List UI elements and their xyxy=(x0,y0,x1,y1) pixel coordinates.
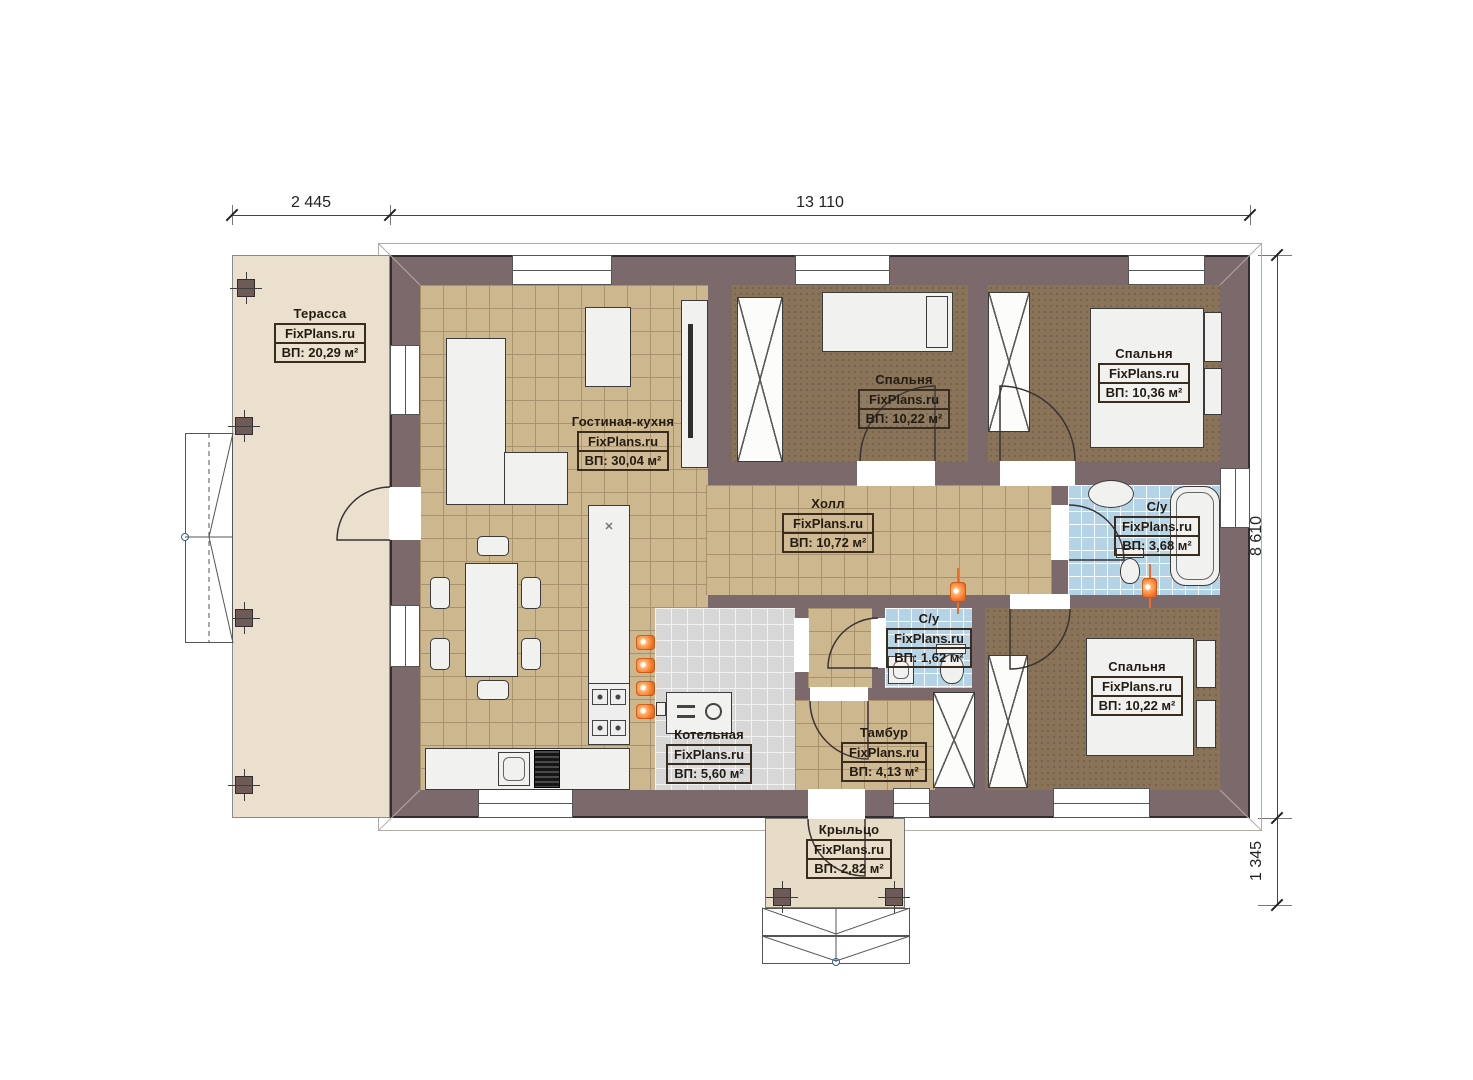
room-name: Спальня xyxy=(875,372,933,387)
window-bedroom-bottom xyxy=(1053,788,1150,818)
nightstand xyxy=(1204,312,1222,362)
chair xyxy=(521,638,541,670)
room-area: ВП: 1,62 м² xyxy=(888,647,970,666)
door-opening-boiler xyxy=(794,618,809,672)
dishwasher xyxy=(534,750,560,788)
dim-terrace-width: 2 445 xyxy=(271,194,351,212)
room-name: Холл xyxy=(811,496,844,511)
chair xyxy=(430,638,450,670)
chair xyxy=(477,680,509,700)
burner-icon xyxy=(610,720,626,736)
sofa xyxy=(446,338,506,505)
boiler-burner-icon xyxy=(705,703,722,720)
room-area: ВП: 20,29 м² xyxy=(276,342,365,361)
sofa-chaise xyxy=(504,452,568,505)
pillow xyxy=(926,296,948,348)
window-bathroom-right xyxy=(1220,468,1250,528)
stairs-start-dot xyxy=(181,533,189,541)
dim-line-top xyxy=(232,215,1250,216)
wardrobe xyxy=(737,297,783,462)
door-opening-bathroom xyxy=(1051,505,1069,560)
burner-icon xyxy=(592,689,608,705)
watermark: FixPlans.ru xyxy=(668,746,750,763)
room-name: Спальня xyxy=(1115,346,1173,361)
room-area: ВП: 2,82 м² xyxy=(808,858,890,877)
porch-column xyxy=(766,881,798,913)
window-kitchen-bottom xyxy=(478,788,573,818)
room-area: ВП: 5,60 м² xyxy=(668,763,750,782)
dim-house-width: 13 110 xyxy=(770,194,870,212)
room-name: Гостиная-кухня xyxy=(572,414,674,429)
room-name: С/у xyxy=(1147,499,1168,514)
burner-icon xyxy=(610,689,626,705)
watermark: FixPlans.ru xyxy=(1100,365,1189,382)
room-label-vestibule: Тамбур FixPlans.ru ВП: 4,13 м² xyxy=(826,725,942,782)
room-name: Терасса xyxy=(294,306,347,321)
watermark: FixPlans.ru xyxy=(860,391,949,408)
dim-line-right xyxy=(1277,255,1278,905)
kitchen-sink-mark: ✕ xyxy=(588,505,630,547)
room-label-bedroom-top: Спальня FixPlans.ru ВП: 10,22 м² xyxy=(846,372,962,429)
room-area: ВП: 10,22 м² xyxy=(860,408,949,427)
heating-icon xyxy=(950,582,966,602)
room-label-bedroom-right: Спальня FixPlans.ru ВП: 10,36 м² xyxy=(1086,346,1202,403)
column-icon xyxy=(773,888,791,906)
door-opening-entrance xyxy=(808,789,865,819)
nightstand xyxy=(1196,700,1216,748)
burner-icon xyxy=(592,720,608,736)
room-area: ВП: 10,72 м² xyxy=(784,532,873,551)
tv-stand xyxy=(681,300,708,468)
coffee-table xyxy=(585,307,631,387)
column-icon xyxy=(235,609,253,627)
nightstand xyxy=(1204,368,1222,415)
terrace-column xyxy=(228,769,260,801)
watermark: FixPlans.ru xyxy=(808,841,890,858)
column-icon xyxy=(885,888,903,906)
chair xyxy=(477,536,509,556)
toilet-bowl xyxy=(1120,558,1140,584)
column-icon xyxy=(237,279,255,297)
room-label-bedroom-bottom: Спальня FixPlans.ru ВП: 10,22 м² xyxy=(1079,659,1195,716)
window-living-top xyxy=(512,255,612,285)
window-bedroom-top xyxy=(795,255,890,285)
door-opening-terrace xyxy=(389,487,421,540)
wardrobe xyxy=(988,292,1030,432)
stove xyxy=(588,683,630,745)
wardrobe xyxy=(988,655,1028,788)
heating-icon xyxy=(636,635,655,650)
window-living-left-1 xyxy=(390,345,420,415)
boiler-line xyxy=(677,705,695,708)
heating-icon xyxy=(636,681,655,696)
chair xyxy=(521,577,541,609)
watermark: FixPlans.ru xyxy=(1116,518,1198,535)
window-living-left-2 xyxy=(390,605,420,667)
room-area: ВП: 10,36 м² xyxy=(1100,382,1189,401)
door-opening-bedroom-bottom xyxy=(1010,594,1070,609)
tv-icon xyxy=(688,324,693,438)
watermark: FixPlans.ru xyxy=(1093,678,1182,695)
kitchen-sink xyxy=(498,752,530,786)
room-label-wc: С/у FixPlans.ru ВП: 1,62 м² xyxy=(871,611,987,668)
room-area: ВП: 10,22 м² xyxy=(1093,695,1182,714)
door-opening-bedroom-right xyxy=(1000,461,1075,486)
room-label-bathroom: С/у FixPlans.ru ВП: 3,68 м² xyxy=(1099,499,1215,556)
room-name: Спальня xyxy=(1108,659,1166,674)
room-label-boiler: Котельная FixPlans.ru ВП: 5,60 м² xyxy=(651,727,767,784)
heating-icon xyxy=(1142,578,1157,598)
watermark: FixPlans.ru xyxy=(276,325,365,342)
nightstand xyxy=(1196,640,1216,688)
dining-table xyxy=(465,563,518,677)
room-name: Котельная xyxy=(674,727,744,742)
column-icon xyxy=(235,417,253,435)
room-label-hall: Холл FixPlans.ru ВП: 10,72 м² xyxy=(770,496,886,553)
room-label-living-kitchen: Гостиная-кухня FixPlans.ru ВП: 30,04 м² xyxy=(565,414,681,471)
watermark: FixPlans.ru xyxy=(784,515,873,532)
column-icon xyxy=(235,776,253,794)
door-opening-bedroom-top xyxy=(857,461,935,486)
steps-start-dot xyxy=(832,958,840,966)
terrace-column xyxy=(230,272,262,304)
room-area: ВП: 4,13 м² xyxy=(843,761,925,780)
watermark: FixPlans.ru xyxy=(579,433,668,450)
room-name: Тамбур xyxy=(860,725,908,740)
hall-corridor xyxy=(808,608,872,688)
watermark: FixPlans.ru xyxy=(888,630,970,647)
heating-icon xyxy=(636,704,655,719)
watermark: FixPlans.ru xyxy=(843,744,925,761)
room-area: ВП: 3,68 м² xyxy=(1116,535,1198,554)
terrace-stairs xyxy=(185,433,233,643)
porch-column xyxy=(878,881,910,913)
room-name: С/у xyxy=(919,611,940,626)
window-vestibule xyxy=(893,788,930,818)
room-name: Крыльцо xyxy=(819,822,880,837)
boiler-line xyxy=(677,715,695,718)
heating-icon xyxy=(636,658,655,673)
room-label-terrace: Терасса FixPlans.ru ВП: 20,29 м² xyxy=(262,306,378,363)
floor-plan-canvas: 2 445 13 110 8 610 1 345 xyxy=(0,0,1473,1080)
chair xyxy=(430,577,450,609)
window-bedroom-right xyxy=(1128,255,1205,285)
room-label-porch: Крыльцо FixPlans.ru ВП: 2,82 м² xyxy=(791,822,907,879)
boiler-pipe-box xyxy=(656,702,666,716)
door-opening-vestibule xyxy=(810,687,868,701)
room-area: ВП: 30,04 м² xyxy=(579,450,668,469)
